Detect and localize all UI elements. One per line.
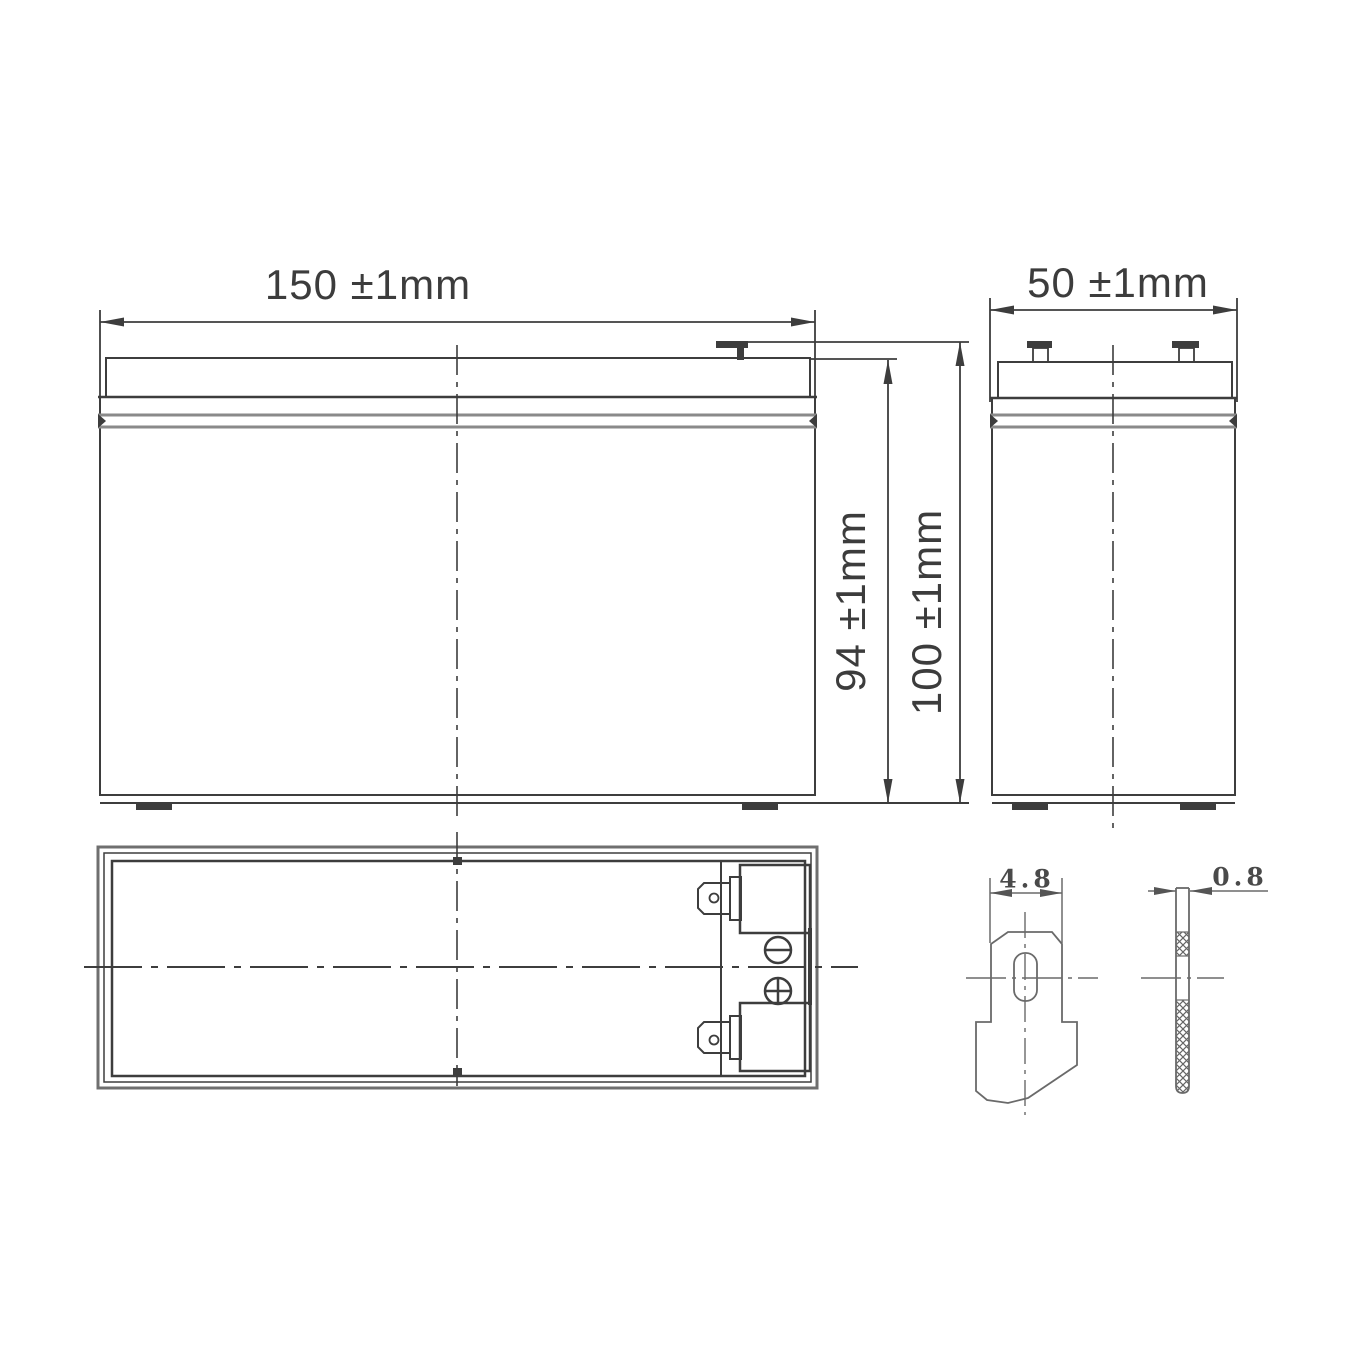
terminal-width-label: 4.8: [999, 865, 1055, 894]
overall-height-label: 100 ±1mm: [903, 509, 951, 715]
side-terminal-left-cap: [1027, 341, 1052, 348]
side-width-label: 50 ±1mm: [1027, 259, 1209, 307]
drawing-linework: [0, 0, 1350, 1350]
terminal-front-outline: [976, 932, 1077, 1103]
top-terminal-base-1: [740, 865, 810, 933]
battery-dimension-drawing: 150 ±1mm 50 ±1mm 94 ±1mm 100 ±1mm 4.8 0.…: [0, 0, 1350, 1350]
side-terminal-left-stem: [1033, 348, 1048, 362]
terminal-hatch-upper: [1176, 932, 1189, 956]
side-terminal-right-stem: [1179, 348, 1194, 362]
side-foot-right: [1180, 803, 1216, 810]
terminal-hatch-lower: [1176, 1000, 1189, 1093]
top-terminal-base-2: [740, 1003, 810, 1071]
front-terminal-cap: [716, 341, 748, 348]
terminal-width-detail: [966, 912, 1098, 1115]
front-lid: [106, 358, 810, 397]
terminal-thickness-label: 0.8: [1212, 863, 1268, 892]
top-view: [84, 832, 858, 1088]
front-foot-right: [742, 803, 778, 810]
front-width-label: 150 ±1mm: [265, 261, 471, 309]
side-foot-left: [1012, 803, 1048, 810]
side-terminal-right-cap: [1172, 341, 1199, 348]
front-foot-left: [136, 803, 172, 810]
top-faston-tab-1: [698, 877, 741, 920]
top-inner-wall: [112, 861, 805, 1076]
positive-terminal-icon: [765, 978, 791, 1004]
negative-terminal-icon: [765, 937, 791, 963]
top-faston-tab-2: [698, 1016, 741, 1059]
terminal-thickness-detail: [1141, 888, 1224, 1093]
side-view: [990, 341, 1237, 828]
side-lid: [998, 362, 1232, 398]
front-terminal-stem: [737, 347, 744, 360]
case-height-label: 94 ±1mm: [827, 510, 875, 692]
